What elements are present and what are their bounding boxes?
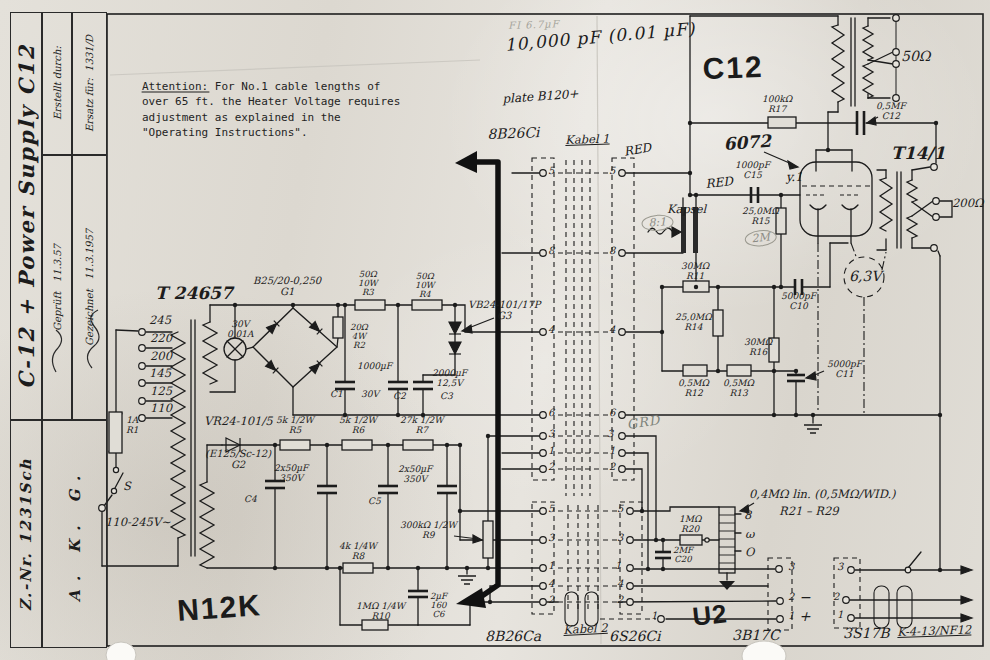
resistor-r12 <box>683 365 707 376</box>
cable-grommet <box>565 592 578 626</box>
punch-holes <box>106 641 786 660</box>
connector-kabel1-right <box>612 158 634 480</box>
resistor-r17 <box>768 117 796 128</box>
terminals <box>99 15 940 623</box>
resistor-r8 <box>343 563 373 573</box>
cable-grommet <box>897 586 912 628</box>
resistor-r7 <box>403 440 433 450</box>
resistor-r5 <box>280 440 310 450</box>
ersatz-text: Ersatz für: 1331/D <box>73 13 106 154</box>
drawing-title: C-12 + Power Supply C12 <box>11 13 41 419</box>
paper-creases <box>110 16 601 644</box>
output-switch <box>905 567 911 573</box>
fuse-r1 <box>109 412 122 453</box>
resistor-r10 <box>362 620 388 630</box>
dashed-elements <box>532 158 884 630</box>
company-name: A. K. G. <box>43 421 106 647</box>
diodes <box>226 321 461 452</box>
title-block-erstellt: Erstellt durch: <box>42 12 72 155</box>
title-block: C-12 + Power Supply C12 Z.-Nr. 1231Sch E… <box>10 12 107 648</box>
title-block-drawing-number: Z.-Nr. 1231Sch <box>10 420 42 648</box>
junction-dots <box>233 121 942 604</box>
resistor-r14 <box>713 310 723 336</box>
connector-6s26ci <box>620 502 642 614</box>
resistor-r20 <box>680 535 702 545</box>
erstellt-text: Erstellt durch: <box>43 13 71 154</box>
tube-6072 <box>800 162 872 236</box>
kapsel-squiggle <box>648 228 672 234</box>
bridge-rectifier-g1 <box>253 308 337 387</box>
title-block-gezeichnet: Gezeichnet 11.3.1957 <box>72 155 107 420</box>
resistor-r6 <box>342 440 372 450</box>
output-transformer-sec-lower <box>863 64 873 98</box>
resistor-r15 <box>776 208 786 234</box>
label-arrows <box>454 117 972 622</box>
resistor-r2 <box>333 317 343 338</box>
connector-8b26ca <box>532 502 554 614</box>
t24657-secondary-winding <box>203 322 217 384</box>
capsule-transformer <box>681 207 698 253</box>
cable-grommet <box>874 586 889 628</box>
t24657-aux-winding <box>200 482 214 568</box>
drawing-number: Z.-Nr. 1231Sch <box>11 421 41 647</box>
heater-6-3v-circle <box>844 257 884 297</box>
title-block-ersatz: Ersatz für: 1331/D <box>72 12 107 155</box>
t14-1-sec-upper <box>907 180 917 202</box>
output-transformer-primary <box>832 25 844 102</box>
resistor-r9 <box>483 521 493 558</box>
resistor-r16 <box>769 338 779 362</box>
title-block-geprueft: Geprüft 11.3.57 <box>42 155 72 420</box>
connector-8b26ci <box>532 158 554 480</box>
t14-1-primary <box>880 178 892 231</box>
title-block-drawing-title: C-12 + Power Supply C12 <box>10 12 42 420</box>
schematic-drawing <box>0 0 990 660</box>
title-block-company: A. K. G. <box>42 420 107 648</box>
cable-grommet <box>585 592 598 626</box>
geprueft-text: Geprüft 11.3.57 <box>43 156 71 419</box>
ground-symbols <box>458 425 822 590</box>
t24657-primary-winding <box>171 332 185 538</box>
ladder-rungs <box>719 515 735 563</box>
resistor-r13 <box>727 365 751 376</box>
resistor-r3 <box>355 300 385 310</box>
resistor-r4 <box>412 300 442 310</box>
t14-1-sec-lower <box>907 216 917 238</box>
heater-dashdot <box>818 243 886 413</box>
schematic-sheet: C-12 + Power Supply C12 Z.-Nr. 1231Sch E… <box>0 0 990 660</box>
output-transformer-sec-upper <box>863 26 873 60</box>
gezeichnet-text: Gezeichnet 11.3.1957 <box>73 156 106 419</box>
resistor-boxes <box>109 117 796 630</box>
